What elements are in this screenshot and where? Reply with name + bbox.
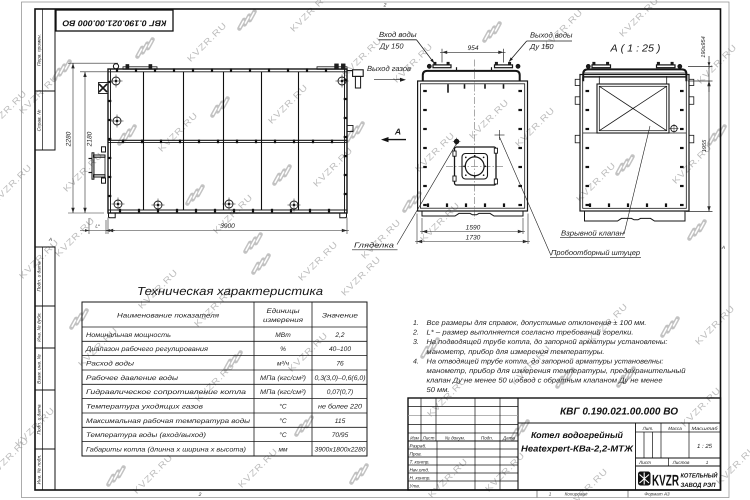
- svg-text:Инв. № дубл.: Инв. № дубл.: [37, 312, 43, 342]
- svg-text:Н. контр.: Н. контр.: [410, 476, 431, 481]
- svg-text:Температура воды (вход/выход): Температура воды (вход/выход): [86, 432, 206, 439]
- svg-text:№ докум.: № докум.: [445, 435, 465, 440]
- svg-text:Выход газов: Выход газов: [367, 64, 411, 73]
- svg-text:Взрывной клапан: Взрывной клапан: [561, 229, 624, 238]
- svg-text:Подп. и дата: Подп. и дата: [37, 404, 43, 434]
- svg-text:KVZR: KVZR: [652, 473, 679, 490]
- svg-text:Утв.: Утв.: [410, 484, 421, 489]
- svg-text:МПа (кгс/см²): МПа (кгс/см²): [260, 375, 306, 382]
- svg-text:Разраб.: Разраб.: [410, 444, 427, 449]
- svg-text:L* – размер выполняется соглас: L* – размер выполняется согласно требова…: [427, 329, 634, 337]
- svg-text:40–100: 40–100: [329, 346, 351, 353]
- svg-text:ЗАВОД РЭП: ЗАВОД РЭП: [681, 482, 717, 489]
- svg-text:Значение: Значение: [322, 313, 358, 320]
- svg-text:Единицы: Единицы: [267, 308, 300, 315]
- svg-text:°С: °С: [279, 418, 287, 425]
- svg-text:L*: L*: [95, 224, 100, 229]
- svg-text:Лист: Лист: [422, 435, 435, 440]
- svg-text:3900: 3900: [220, 223, 235, 230]
- svg-text:1730: 1730: [466, 235, 481, 242]
- svg-text:Гидравлическое сопротивление к: Гидравлическое сопротивление котла: [86, 389, 246, 396]
- svg-text:Техническая характеристика: Техническая характеристика: [137, 285, 324, 298]
- svg-text:°С: °С: [279, 404, 287, 411]
- svg-text:Подп.: Подп.: [481, 435, 493, 440]
- svg-text:Все размеры для справок, допус: Все размеры для справок, допустимые откл…: [427, 319, 647, 327]
- svg-text:°С: °С: [279, 432, 287, 439]
- svg-text:2280: 2280: [66, 131, 73, 147]
- svg-text:70/95: 70/95: [332, 432, 349, 439]
- svg-text:клапан Ду не менее 50 и обвод: клапан Ду не менее 50 и обвод с обратным…: [427, 377, 663, 385]
- svg-text:%: %: [280, 346, 286, 353]
- svg-text:измерения: измерения: [263, 317, 304, 324]
- svg-text:Т. контр.: Т. контр.: [410, 460, 430, 465]
- svg-text:МВт: МВт: [275, 332, 291, 339]
- svg-text:2: 2: [198, 492, 202, 498]
- svg-text:2,2: 2,2: [334, 332, 344, 339]
- svg-text:А ( 1 : 25 ): А ( 1 : 25 ): [609, 44, 660, 55]
- svg-text:Нач.отд.: Нач.отд.: [410, 468, 430, 473]
- svg-text:КВГ 0.190.021.00.000 ВО: КВГ 0.190.021.00.000 ВО: [62, 19, 167, 28]
- svg-text:Перв. примен.: Перв. примен.: [37, 34, 43, 66]
- svg-text:Максимальная рабочая температу: Максимальная рабочая температура воды: [86, 418, 250, 425]
- svg-text:2: 2: [383, 3, 387, 9]
- svg-text:Наименование показателя: Наименование показателя: [117, 313, 220, 320]
- svg-text:На отводящей трубе котла, до з: На отводящей трубе котла, до запорной ар…: [427, 357, 664, 365]
- svg-text:Лит.: Лит.: [642, 426, 654, 431]
- svg-text:не более 220: не более 220: [318, 404, 362, 411]
- svg-text:Температура уходящих газов: Температура уходящих газов: [86, 404, 204, 411]
- svg-text:1590: 1590: [466, 225, 481, 232]
- svg-text:1 : 25: 1 : 25: [697, 443, 713, 450]
- svg-text:190х954: 190х954: [701, 36, 707, 57]
- svg-text:Подп. и дата: Подп. и дата: [37, 261, 43, 291]
- svg-text:50 мм.: 50 мм.: [427, 387, 450, 394]
- svg-text:манометр, прибор для измерения: манометр, прибор для измерения температу…: [427, 348, 605, 356]
- svg-text:Дата: Дата: [502, 435, 516, 440]
- svg-text:МПа (кгс/см²): МПа (кгс/см²): [260, 389, 306, 396]
- svg-text:Лист: Лист: [638, 460, 651, 465]
- svg-text:Формат А3: Формат А3: [644, 492, 670, 497]
- svg-text:1955: 1955: [702, 139, 708, 152]
- svg-text:Взам. инв. №: Взам. инв. №: [37, 353, 43, 383]
- svg-text:На подводящей трубе котла, до: На подводящей трубе котла, до запорной а…: [427, 338, 668, 346]
- svg-text:954: 954: [467, 45, 478, 52]
- svg-text:3900х1800х2280: 3900х1800х2280: [315, 447, 366, 454]
- svg-text:КВГ 0.190.021.00.000 ВО: КВГ 0.190.021.00.000 ВО: [560, 407, 678, 418]
- svg-text:Инв. № подл.: Инв. № подл.: [37, 455, 43, 485]
- svg-text:Масштаб: Масштаб: [692, 426, 718, 431]
- svg-text:Выход воды: Выход воды: [530, 31, 573, 40]
- svg-text:76: 76: [336, 361, 344, 368]
- svg-text:0,3(3,0)–0,6(6,0): 0,3(3,0)–0,6(6,0): [315, 375, 366, 382]
- svg-text:Ду 150: Ду 150: [379, 42, 404, 51]
- svg-text:А: А: [394, 126, 401, 136]
- svg-text:3.: 3.: [413, 339, 419, 346]
- svg-text:манометр, прибор для измерения: манометр, прибор для измерения температу…: [427, 367, 686, 375]
- svg-text:Котел водогрейный: Котел водогрейный: [531, 430, 624, 440]
- svg-text:Диапазон рабочего регулировани: Диапазон рабочего регулирования: [85, 346, 209, 353]
- svg-text:Копировал: Копировал: [565, 492, 588, 497]
- svg-text:А: А: [48, 237, 52, 243]
- svg-text:А: А: [721, 245, 725, 251]
- svg-text:1.: 1.: [413, 320, 419, 327]
- svg-text:Рабочее давление воды: Рабочее давление воды: [86, 375, 178, 382]
- svg-text:Изм: Изм: [410, 435, 419, 440]
- svg-text:Номинальная мощность: Номинальная мощность: [86, 332, 172, 339]
- svg-text:0,07(0,7): 0,07(0,7): [327, 389, 353, 396]
- svg-text:1: 1: [706, 460, 709, 465]
- svg-text:Масса: Масса: [668, 426, 682, 431]
- svg-text:115: 115: [335, 418, 346, 425]
- svg-text:мм: мм: [278, 447, 288, 454]
- svg-text:Пробоотборный штуцер: Пробоотборный штуцер: [551, 248, 640, 257]
- svg-text:Справ. №: Справ. №: [37, 109, 43, 132]
- svg-text:Листов: Листов: [672, 460, 690, 465]
- svg-text:1: 1: [549, 492, 552, 497]
- svg-text:м³/ч: м³/ч: [277, 361, 290, 368]
- svg-text:Габариты котла (длинна х ширин: Габариты котла (длинна х ширина х высота…: [86, 447, 246, 454]
- svg-text:Расход воды: Расход воды: [86, 361, 134, 368]
- svg-text:4.: 4.: [413, 358, 419, 365]
- svg-text:Вход воды: Вход воды: [379, 30, 417, 39]
- svg-text:Heatexpert-КВа-2,2-МТЖ: Heatexpert-КВа-2,2-МТЖ: [521, 444, 634, 454]
- svg-text:2180: 2180: [87, 131, 94, 147]
- svg-text:Ду 150: Ду 150: [529, 42, 554, 51]
- svg-text:Гляделка: Гляделка: [354, 241, 394, 250]
- svg-text:Пров.: Пров.: [410, 452, 422, 457]
- svg-text:2.: 2.: [412, 330, 419, 337]
- svg-text:КОТЕЛЬНЫЙ: КОТЕЛЬНЫЙ: [681, 472, 718, 480]
